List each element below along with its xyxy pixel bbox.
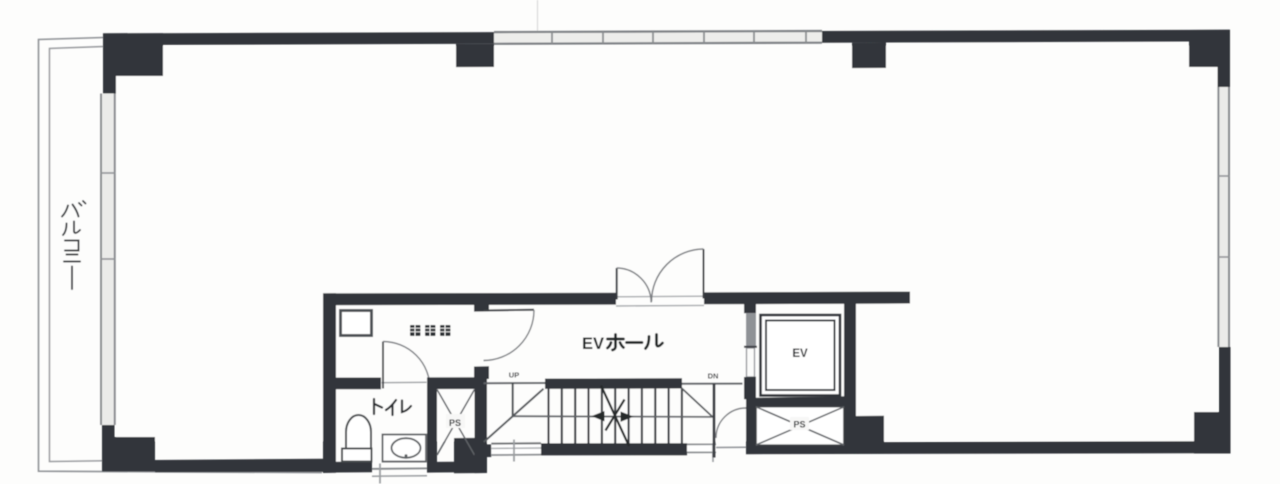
svg-text:UP: UP	[509, 371, 519, 380]
svg-text:PS: PS	[793, 420, 805, 430]
svg-text:EV: EV	[792, 348, 808, 360]
svg-text:PS: PS	[449, 418, 461, 428]
svg-text:EV: EV	[582, 335, 604, 353]
svg-text:DN: DN	[708, 372, 719, 381]
